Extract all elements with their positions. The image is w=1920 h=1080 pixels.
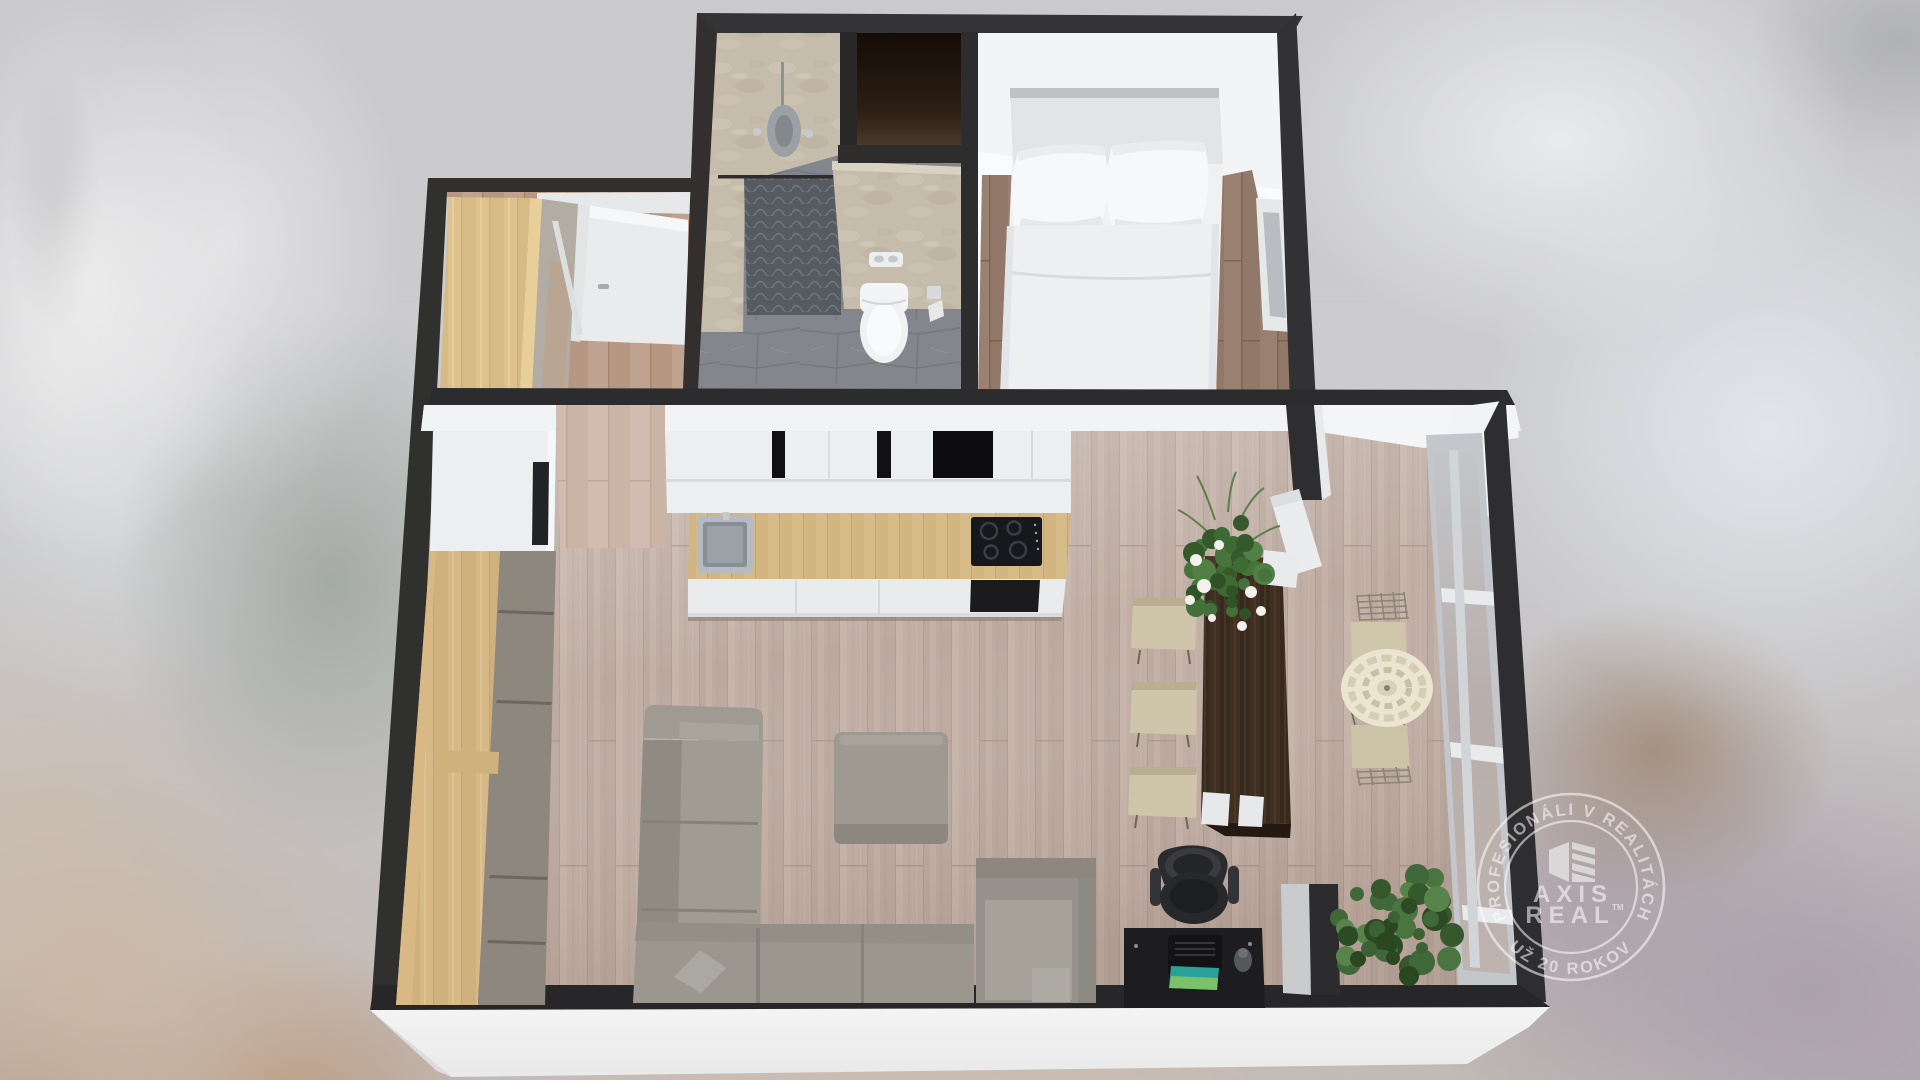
svg-text:TM: TM (1612, 903, 1624, 912)
svg-text:REAL: REAL (1525, 902, 1614, 929)
